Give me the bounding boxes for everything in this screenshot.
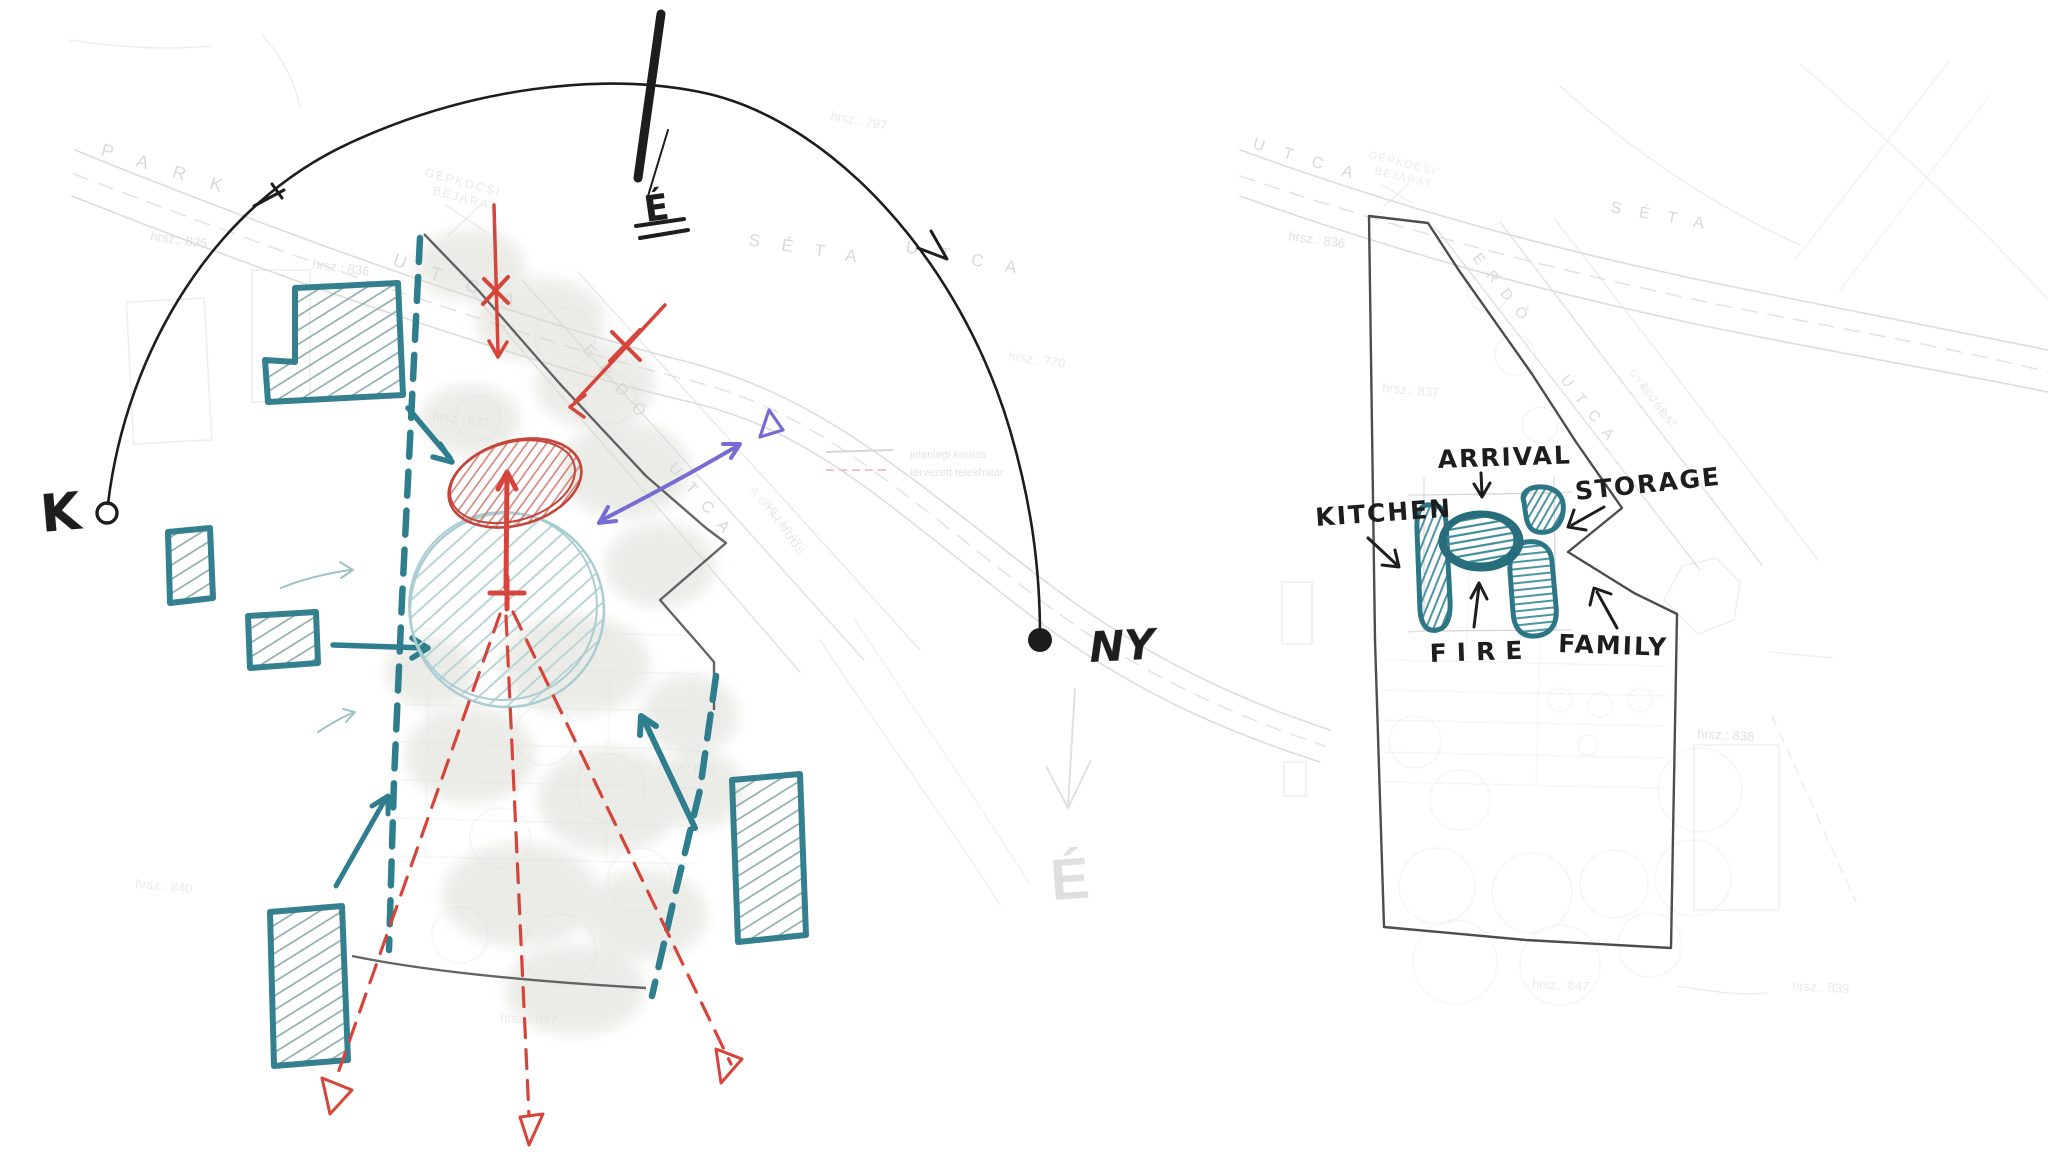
label-storage: STORAGE bbox=[1574, 462, 1723, 506]
legend-item-boundary: tervezett telekhatár bbox=[910, 467, 1004, 479]
view-arrowhead bbox=[322, 1049, 742, 1145]
street-label-park: PARK bbox=[99, 140, 250, 203]
compass-east-point bbox=[97, 503, 117, 523]
street-label-utca: UTCA bbox=[1251, 136, 1374, 188]
parcel-label: hrsz.: 838 bbox=[1697, 726, 1755, 744]
sketch-canvas: PARK UTCA SÉTA UTCA ERDŐ UTCA GÉPKOCSI B… bbox=[0, 0, 2048, 1152]
parcel-label: hrsz.: 836 bbox=[1288, 228, 1347, 251]
right-basemap: UTCA SÉTA ERDŐ UTCA GÉPKOCSI BEJÁRAT GYA… bbox=[1240, 60, 2048, 1005]
entrance-label-gyalogos-bejarat: BEJÁRAT bbox=[1638, 380, 1681, 432]
parcel-label: hrsz.: 837 bbox=[1382, 380, 1440, 400]
parcel-label: hrsz.: 847 bbox=[1532, 976, 1590, 994]
label-fire: FIRE bbox=[1429, 635, 1533, 668]
legend-item-fence: jelenlegi kerítés bbox=[909, 449, 987, 461]
compass-west-label: NY bbox=[1088, 619, 1160, 672]
map-legend: jelenlegi kerítés tervezett telekhatár bbox=[826, 449, 1004, 479]
parcel-label: hrsz.: 835 bbox=[150, 228, 209, 251]
label-family: FAMILY bbox=[1558, 629, 1669, 662]
map-north-label: É bbox=[1048, 845, 1091, 913]
parcel-label: hrsz.: 840 bbox=[135, 876, 193, 896]
parcel-label: hrsz.: 839 bbox=[1792, 978, 1850, 996]
storage-blob bbox=[1523, 487, 1563, 532]
parcel-label: hrsz.: 797 bbox=[829, 108, 888, 133]
compass-east-label: K bbox=[38, 482, 85, 545]
street-label-erdo: ERDŐ bbox=[1469, 250, 1539, 332]
parcel-label: hrsz.: 770 bbox=[1008, 348, 1067, 371]
left-basemap: PARK UTCA SÉTA UTCA ERDŐ UTCA GÉPKOCSI B… bbox=[70, 34, 1330, 1028]
left-sketch: PARK UTCA SÉTA UTCA ERDŐ UTCA GÉPKOCSI B… bbox=[38, 14, 1330, 1145]
arrival-fire-blob bbox=[1442, 514, 1520, 568]
compass-west-point bbox=[1028, 628, 1052, 652]
label-arrival: ARRIVAL bbox=[1437, 440, 1572, 474]
entrance-label-gyalogos-bejarat: BEJÁRAT bbox=[762, 498, 807, 551]
map-north-arrow: É bbox=[1046, 688, 1092, 913]
street-label-seta: SÉTA bbox=[1609, 197, 1723, 235]
concept-sketches-svg: PARK UTCA SÉTA UTCA ERDŐ UTCA GÉPKOCSI B… bbox=[0, 0, 2048, 1152]
right-sketch: UTCA SÉTA ERDŐ UTCA GÉPKOCSI BEJÁRAT GYA… bbox=[1240, 60, 2048, 1005]
street-label-seta-utca: UTCA bbox=[904, 237, 1039, 281]
street-label-seta: SÉTA bbox=[747, 230, 879, 269]
